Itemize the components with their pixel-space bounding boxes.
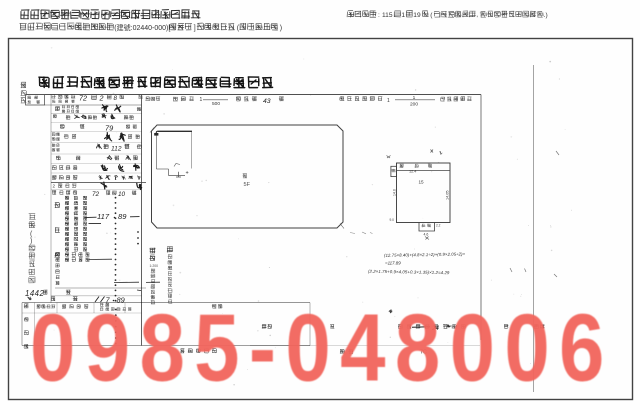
svg-text:12.4: 12.4 — [409, 169, 416, 173]
svg-text:1: 1 — [401, 12, 405, 19]
svg-text:2.2: 2.2 — [436, 224, 441, 228]
svg-text:89: 89 — [118, 212, 127, 221]
svg-text:8: 8 — [114, 95, 118, 102]
svg-text:1:200: 1:200 — [150, 264, 159, 268]
svg-text:4.6: 4.6 — [424, 233, 429, 237]
svg-text:72: 72 — [92, 191, 100, 198]
svg-text:2: 2 — [99, 93, 104, 102]
svg-text:.): .) — [544, 12, 548, 19]
svg-text:19: 19 — [413, 12, 421, 19]
svg-text::: : — [378, 12, 380, 19]
svg-text:,: , — [476, 12, 478, 19]
svg-text:500: 500 — [212, 101, 220, 107]
svg-text:115: 115 — [382, 12, 393, 19]
svg-text:117: 117 — [97, 212, 110, 221]
svg-text:14.05: 14.05 — [446, 190, 450, 200]
svg-text:1: 1 — [200, 97, 203, 103]
svg-text:): ) — [280, 25, 282, 32]
svg-text:0985-048006: 0985-048006 — [30, 293, 614, 401]
svg-text:14.0: 14.0 — [392, 189, 396, 196]
svg-text:=117.89: =117.89 — [385, 261, 401, 266]
svg-text:5F: 5F — [244, 182, 251, 188]
svg-text:10: 10 — [118, 191, 126, 198]
svg-text:200: 200 — [410, 101, 418, 107]
svg-text:72: 72 — [79, 93, 87, 102]
svg-text:79: 79 — [105, 124, 113, 133]
svg-text:112: 112 — [111, 146, 122, 153]
svg-text:1: 1 — [387, 98, 390, 104]
svg-text:): ) — [30, 238, 32, 245]
svg-text:1: 1 — [413, 95, 416, 101]
svg-text:2: 2 — [53, 184, 56, 189]
svg-text:(建號:02440-000)[: (建號:02440-000)[ — [114, 23, 170, 32]
svg-text:9.0: 9.0 — [390, 218, 395, 222]
svg-text:]: ] — [194, 25, 196, 32]
svg-text:15: 15 — [419, 180, 425, 185]
svg-text:43: 43 — [263, 98, 271, 105]
